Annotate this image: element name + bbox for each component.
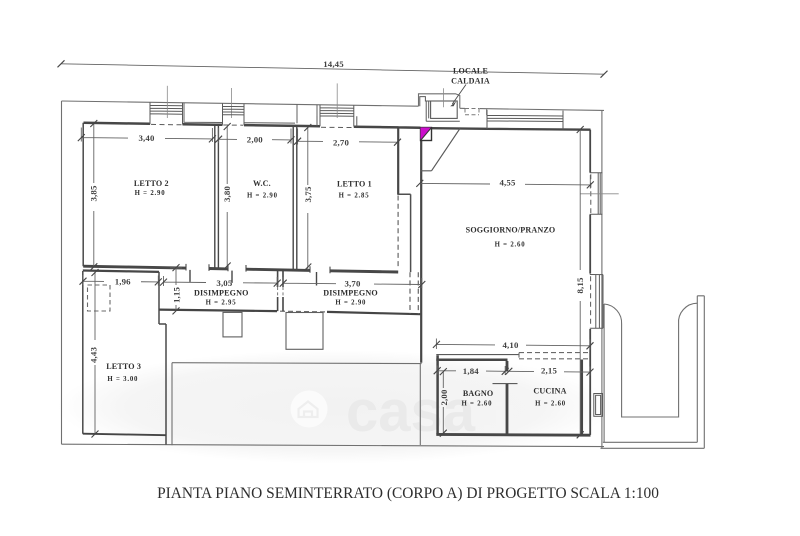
- svg-text:W.C.: W.C.: [253, 179, 271, 188]
- svg-text:H = 2.85: H = 2.85: [339, 193, 370, 200]
- svg-text:3,75: 3,75: [303, 186, 313, 202]
- svg-text:H = 2.90: H = 2.90: [335, 300, 366, 307]
- svg-text:CALDAIA: CALDAIA: [451, 76, 490, 85]
- svg-text:PIANTA PIANO SEMINTERRATO (COR: PIANTA PIANO SEMINTERRATO (CORPO A) DI P…: [157, 485, 659, 502]
- svg-text:4,10: 4,10: [503, 340, 519, 350]
- svg-text:H = 2.90: H = 2.90: [135, 190, 166, 197]
- svg-text:DISIMPEGNO: DISIMPEGNO: [323, 288, 378, 297]
- svg-text:H = 2.60: H = 2.60: [461, 400, 492, 407]
- svg-text:LETTO 1: LETTO 1: [337, 179, 372, 188]
- svg-text:8,15: 8,15: [575, 277, 585, 293]
- svg-text:LETTO 2: LETTO 2: [134, 179, 169, 188]
- svg-text:4,43: 4,43: [88, 347, 98, 363]
- svg-text:LOCALE: LOCALE: [453, 67, 488, 76]
- svg-text:CUCINA: CUCINA: [533, 387, 566, 396]
- svg-text:H = 2.60: H = 2.60: [495, 241, 526, 248]
- svg-text:2,15: 2,15: [541, 365, 557, 375]
- svg-text:14,45: 14,45: [323, 59, 344, 69]
- svg-text:3,40: 3,40: [139, 133, 155, 143]
- svg-text:2,00: 2,00: [439, 389, 449, 405]
- svg-text:BAGNO: BAGNO: [463, 389, 493, 398]
- svg-text:2,00: 2,00: [247, 134, 263, 144]
- svg-text:1,84: 1,84: [463, 366, 479, 376]
- svg-text:SOGGIORNO/PRANZO: SOGGIORNO/PRANZO: [466, 226, 556, 235]
- svg-text:4,55: 4,55: [500, 177, 516, 187]
- svg-text:LETTO 3: LETTO 3: [106, 362, 141, 371]
- svg-text:2,70: 2,70: [333, 138, 349, 148]
- svg-text:3,05: 3,05: [216, 278, 232, 288]
- svg-text:H = 2.95: H = 2.95: [206, 300, 237, 307]
- svg-text:H = 2.90: H = 2.90: [247, 192, 278, 199]
- svg-text:3,70: 3,70: [345, 278, 361, 288]
- svg-text:1,15: 1,15: [172, 287, 182, 303]
- svg-text:DISIMPEGNO: DISIMPEGNO: [194, 289, 249, 298]
- svg-text:3,85: 3,85: [89, 185, 99, 201]
- svg-text:3,80: 3,80: [222, 186, 232, 202]
- svg-text:1,96: 1,96: [115, 276, 131, 286]
- svg-text:H = 3.00: H = 3.00: [107, 376, 138, 383]
- svg-text:H = 2.60: H = 2.60: [535, 401, 566, 408]
